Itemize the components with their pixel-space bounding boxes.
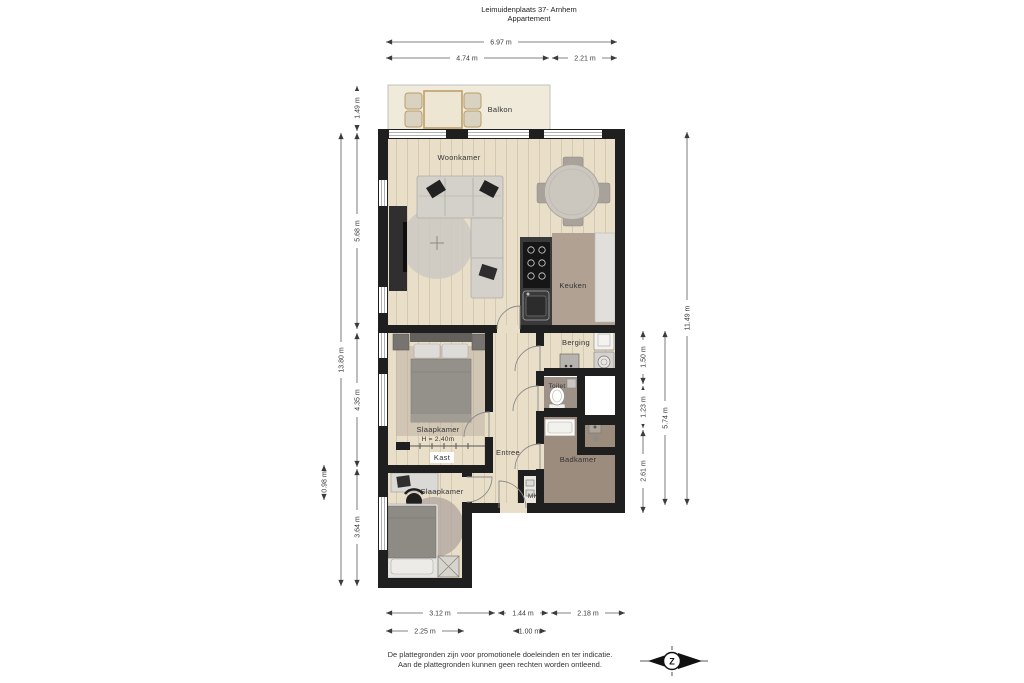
dim-top-total: 6.97 m bbox=[490, 40, 512, 47]
dim-left-total: 13.80 m bbox=[339, 347, 346, 372]
dim-bottom-r1-mid: 1.44 m bbox=[512, 611, 534, 618]
dim-right-badkamer: 2.61 m bbox=[641, 460, 648, 482]
dim-bottom-r2-mid: 1.00 m bbox=[519, 629, 541, 636]
bed-single bbox=[386, 504, 438, 578]
label-slaapkamer1: Slaapkamer bbox=[416, 425, 459, 434]
label-balkon: Balkon bbox=[488, 105, 513, 114]
window bbox=[379, 374, 387, 426]
disclaimer-line2: Aan de plattegronden kunnen geen rechten… bbox=[398, 660, 602, 669]
dim-right-toilet: 1.23 m bbox=[641, 396, 648, 418]
label-keuken: Keuken bbox=[559, 281, 586, 290]
window bbox=[389, 130, 446, 138]
bathroom-sink bbox=[545, 419, 575, 436]
shower-head-icon bbox=[593, 436, 599, 442]
dim-left-balkon: 1.49 m bbox=[355, 97, 362, 119]
header: Leimuidenplaats 37- Arnhem Appartement bbox=[481, 5, 576, 23]
label-badkamer: Badkamer bbox=[560, 455, 597, 464]
balcony-chair bbox=[464, 111, 481, 127]
window bbox=[544, 130, 602, 138]
shaft-void bbox=[585, 376, 615, 415]
dim-left-slaapkamer1: 4.35 m bbox=[355, 389, 362, 411]
page-subtitle: Appartement bbox=[508, 14, 552, 23]
floorplan-page: Leimuidenplaats 37- Arnhem Appartement bbox=[0, 0, 1024, 683]
dim-bottom-r1-right: 2.18 m bbox=[577, 611, 599, 618]
window bbox=[379, 287, 387, 313]
dim-bottom-r2-left: 2.25 m bbox=[414, 629, 436, 636]
label-berging: Berging bbox=[562, 338, 590, 347]
nightstand bbox=[393, 334, 409, 350]
dim-right-total: 11.49 m bbox=[685, 305, 692, 330]
duvet bbox=[411, 359, 471, 422]
dining-table bbox=[545, 165, 600, 220]
dim-left-slaapkamer2: 3.64 m bbox=[355, 516, 362, 538]
dim-top-right: 2.21 m bbox=[574, 56, 596, 63]
keuken-counter-light bbox=[595, 233, 615, 322]
window bbox=[379, 333, 387, 358]
balcony bbox=[388, 85, 550, 133]
disclaimer-line1: De plattegronden zijn voor promotionele … bbox=[388, 650, 613, 659]
bed-foot bbox=[411, 414, 471, 422]
kitchen-block bbox=[520, 237, 552, 325]
laptop bbox=[396, 475, 410, 488]
storage-crate bbox=[438, 556, 459, 577]
window bbox=[379, 180, 387, 206]
label-slaapkamer2: Slaapkamer bbox=[420, 487, 463, 496]
dim-left-kast: 0.98 m bbox=[322, 471, 329, 493]
page-title: Leimuidenplaats 37- Arnhem bbox=[481, 5, 576, 14]
label-woonkamer: Woonkamer bbox=[438, 153, 481, 162]
balcony-chair bbox=[405, 93, 422, 109]
dim-left-woonkamer: 5.68 m bbox=[355, 220, 362, 242]
compass-label: Z bbox=[669, 657, 675, 667]
toilet-sink bbox=[567, 379, 576, 388]
dim-bottom-r1-left: 3.12 m bbox=[429, 611, 451, 618]
stove bbox=[523, 242, 550, 288]
pillow bbox=[442, 344, 468, 358]
window bbox=[468, 130, 529, 138]
label-entree: Entree bbox=[496, 448, 520, 457]
balcony-table bbox=[424, 91, 462, 128]
duvet bbox=[388, 506, 436, 558]
balcony-chair bbox=[405, 111, 422, 127]
headboard bbox=[410, 333, 472, 342]
tv bbox=[403, 222, 407, 272]
footer: De plattegronden zijn voor promotionele … bbox=[388, 646, 708, 676]
window bbox=[379, 497, 387, 550]
dim-top-left: 4.74 m bbox=[456, 56, 478, 63]
pillow bbox=[391, 559, 433, 574]
pillow bbox=[414, 344, 440, 358]
compass-icon: Z bbox=[640, 646, 708, 676]
label-kast: Kast bbox=[434, 453, 451, 462]
faucet bbox=[527, 293, 530, 296]
dim-right-berging: 1.50 m bbox=[641, 346, 648, 368]
floorplan-canvas: Leimuidenplaats 37- Arnhem Appartement bbox=[0, 0, 1024, 683]
label-toilet: Toilet bbox=[549, 383, 566, 390]
label-mk: MK bbox=[528, 493, 539, 500]
balcony-chair bbox=[464, 93, 481, 109]
dim-right-middle: 5.74 m bbox=[663, 407, 670, 429]
label-slaapkamer1-height: H = 2.40m bbox=[422, 436, 455, 443]
